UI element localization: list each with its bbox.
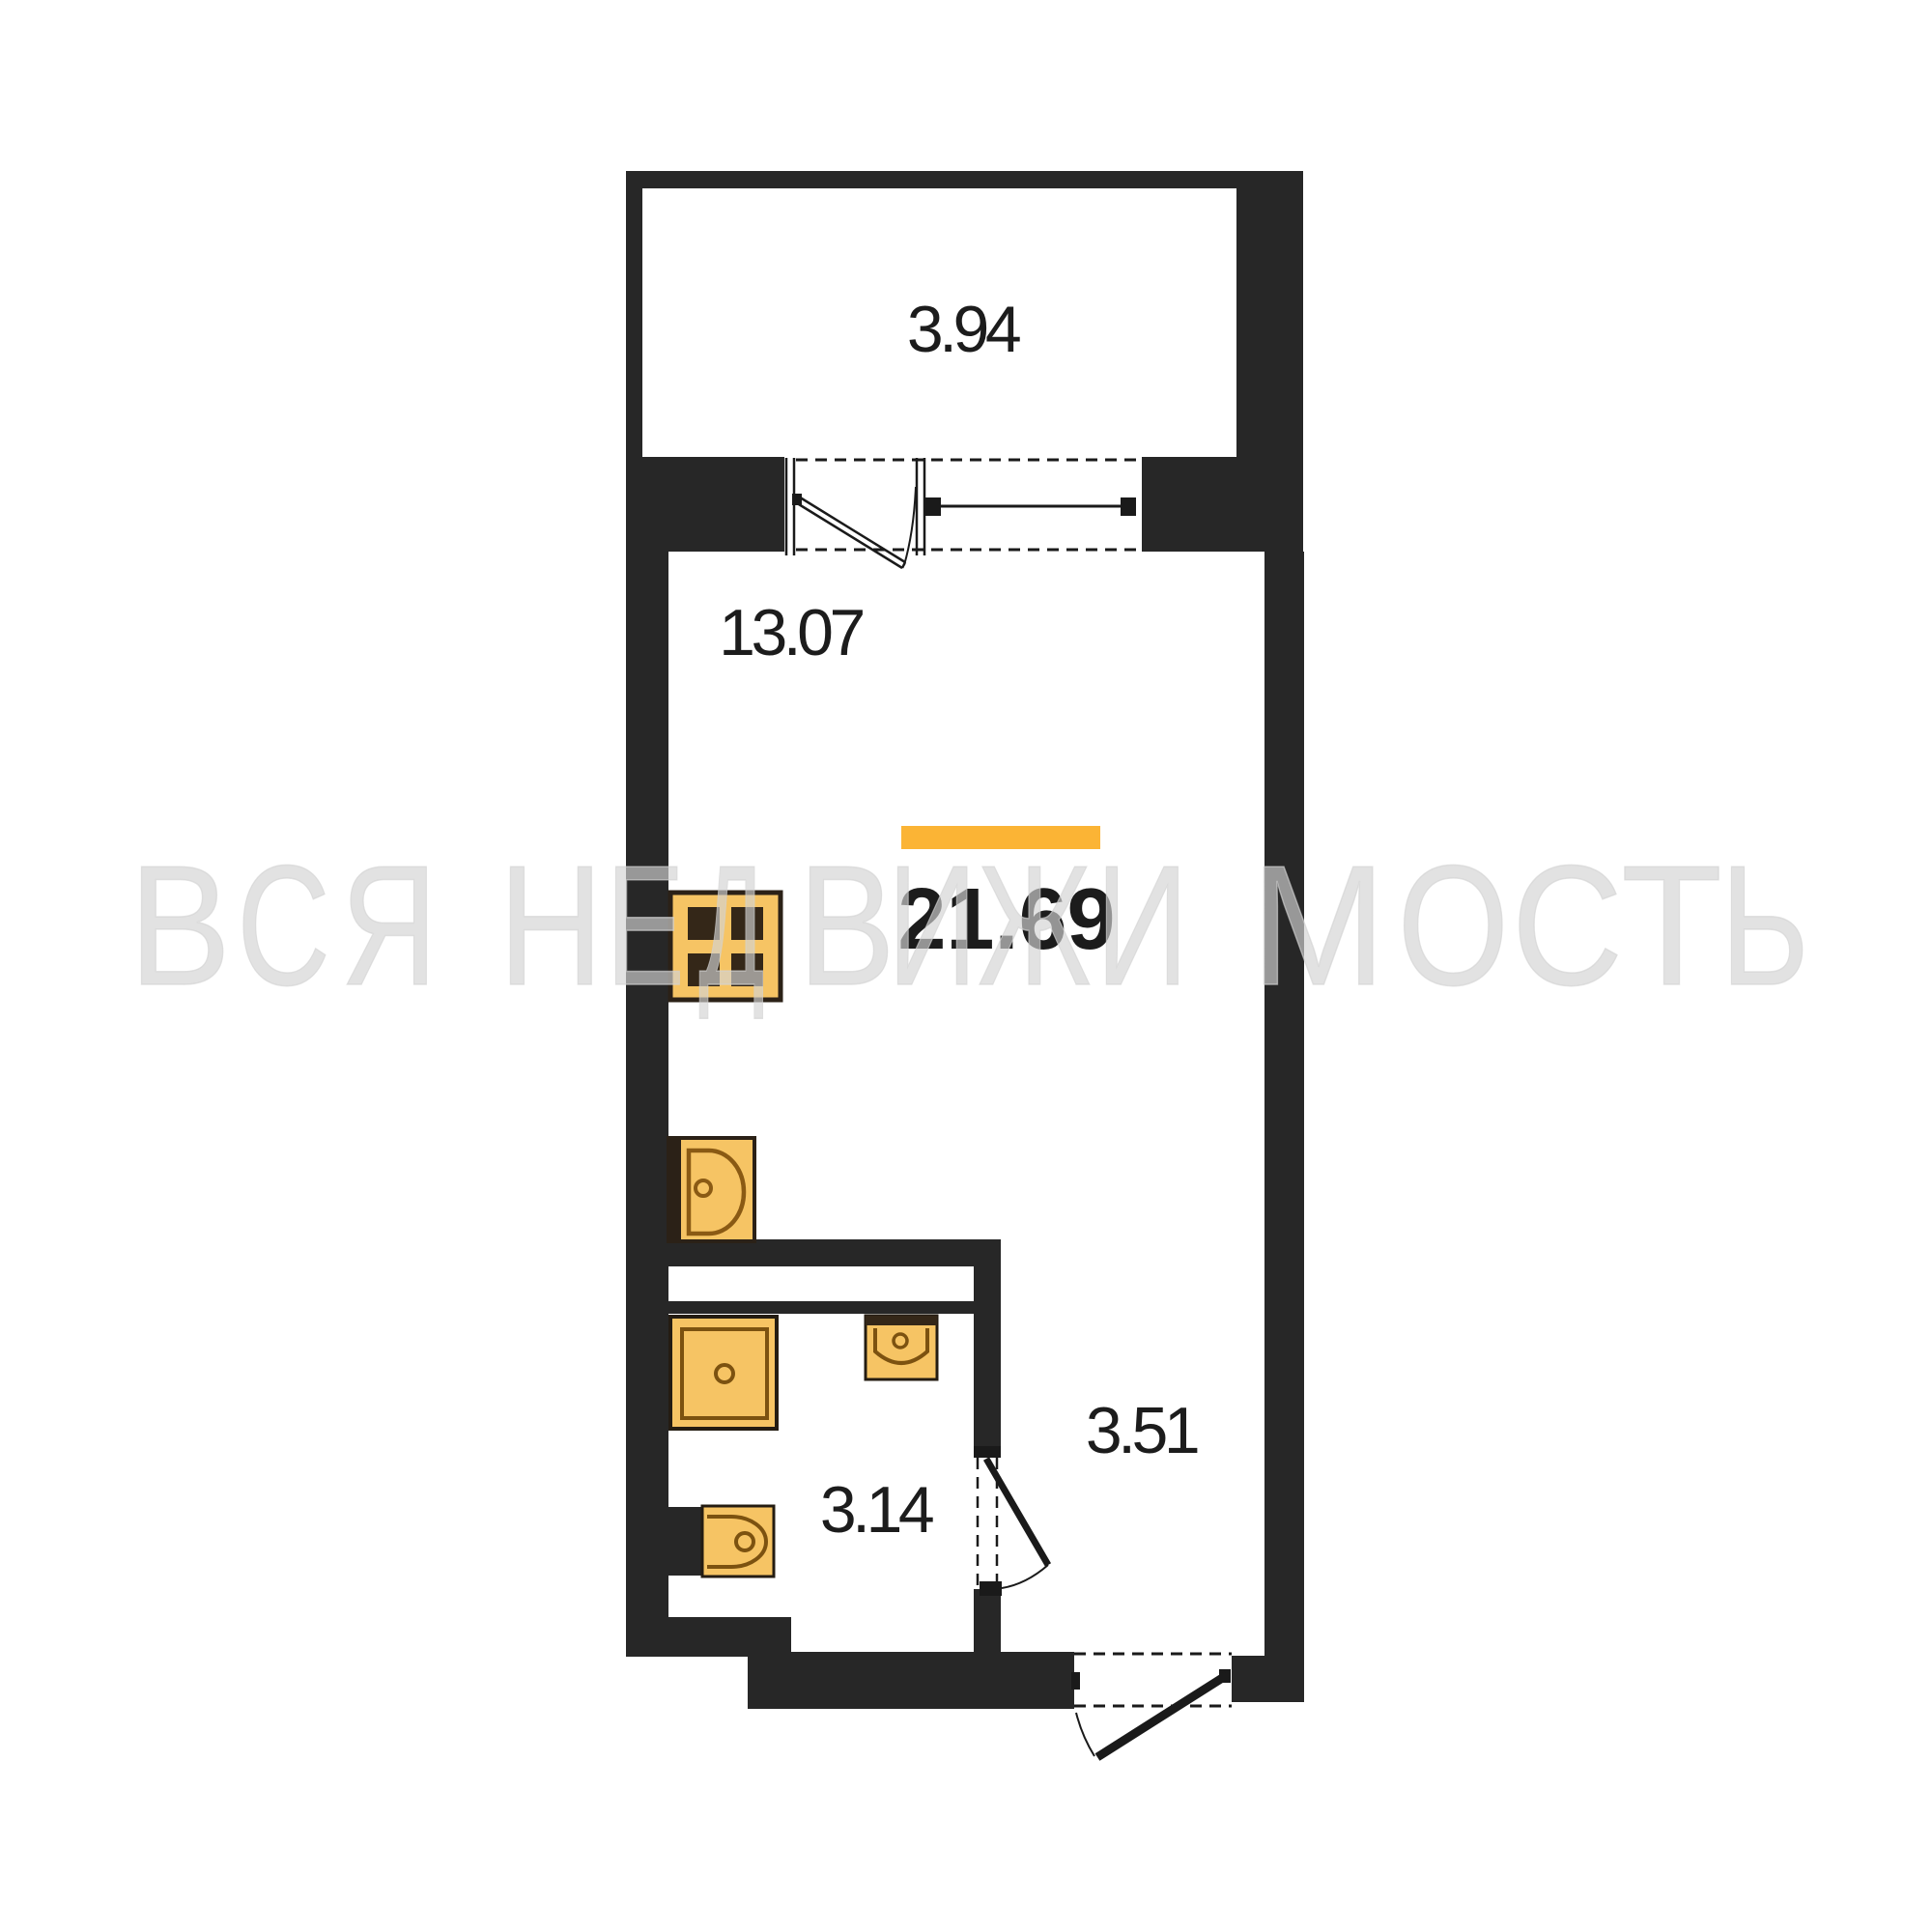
svg-text:Ь: Ь: [1720, 829, 1809, 1020]
svg-text:О: О: [1398, 830, 1510, 1021]
svg-text:Я: Я: [341, 830, 438, 1021]
svg-text:С: С: [1512, 829, 1623, 1021]
svg-text:С: С: [237, 831, 330, 1021]
svg-text:3.51: 3.51: [1086, 1394, 1198, 1467]
svg-text:Н: Н: [498, 829, 603, 1020]
svg-text:3.14: 3.14: [820, 1473, 933, 1547]
svg-text:Е: Е: [606, 830, 684, 1021]
svg-text:И: И: [1095, 831, 1188, 1022]
svg-text:Д: Д: [698, 830, 764, 1021]
svg-text:13.07: 13.07: [719, 596, 863, 669]
svg-text:Ж: Ж: [978, 830, 1091, 1021]
svg-text:В: В: [798, 830, 895, 1021]
svg-text:В: В: [129, 830, 232, 1021]
svg-text:Т: Т: [1621, 830, 1722, 1021]
svg-text:М: М: [1251, 830, 1386, 1021]
svg-text:3.94: 3.94: [907, 293, 1020, 366]
svg-text:И: И: [888, 830, 978, 1021]
